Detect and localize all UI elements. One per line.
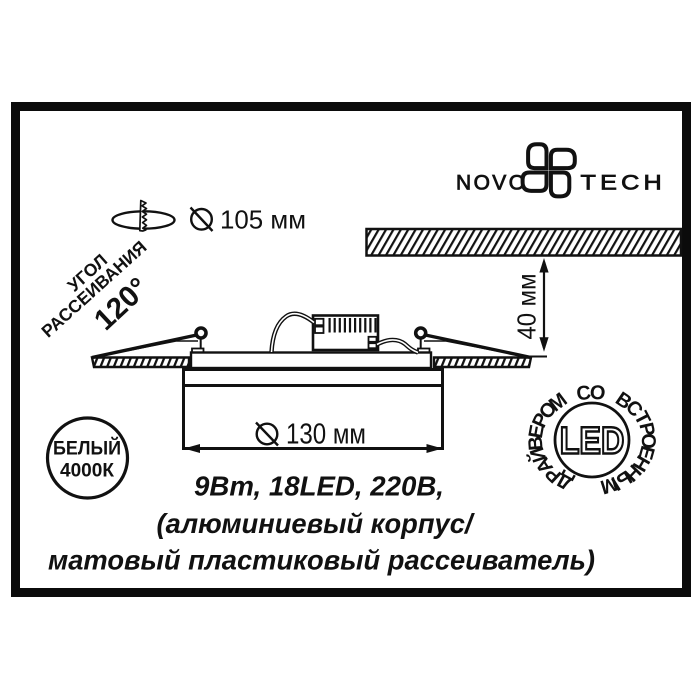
svg-text:4000К: 4000К xyxy=(60,460,114,482)
svg-text:105 мм: 105 мм xyxy=(220,205,306,235)
svg-text:TECH: TECH xyxy=(581,170,666,194)
svg-text:БЕЛЫЙ: БЕЛЫЙ xyxy=(53,436,121,460)
svg-text:NOVO: NOVO xyxy=(456,172,527,195)
svg-text:О: О xyxy=(589,382,607,405)
svg-text:матовый пластиковый рассеивате: матовый пластиковый рассеиватель) xyxy=(48,545,595,576)
svg-text:9Вт, 18LED, 220В,: 9Вт, 18LED, 220В, xyxy=(194,471,444,502)
svg-text:(алюминиевый корпус/: (алюминиевый корпус/ xyxy=(157,508,476,539)
svg-text:40 мм: 40 мм xyxy=(512,274,542,340)
svg-text:LED: LED xyxy=(560,420,625,462)
svg-text:130 мм: 130 мм xyxy=(286,419,366,451)
